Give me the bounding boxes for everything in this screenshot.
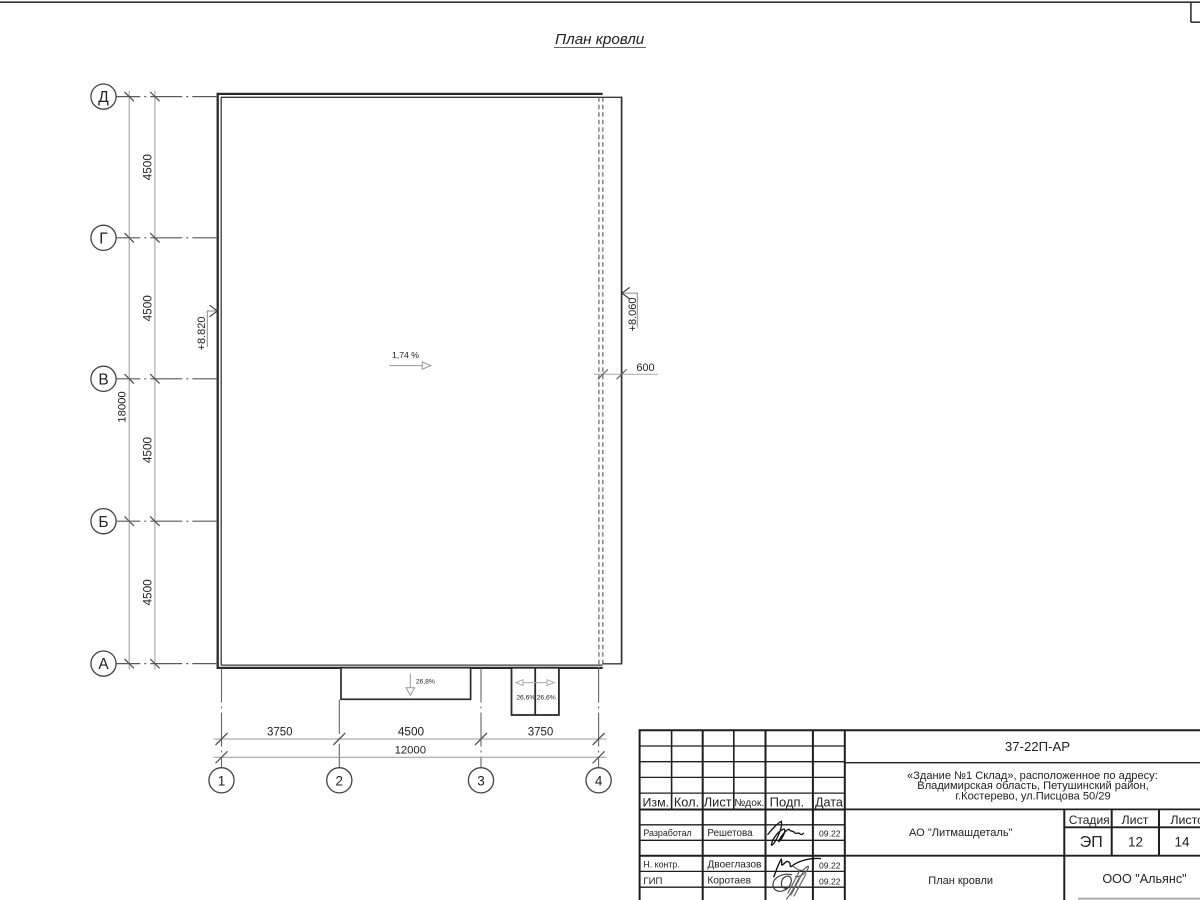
svg-text:+8.820: +8.820 (196, 317, 208, 351)
svg-text:Лист: Лист (704, 795, 732, 810)
svg-text:12000: 12000 (395, 745, 426, 757)
svg-text:В: В (98, 371, 108, 388)
svg-text:Подп.: Подп. (770, 795, 805, 810)
svg-text:4500: 4500 (140, 436, 154, 463)
svg-text:09.22: 09.22 (819, 861, 841, 871)
svg-text:4: 4 (595, 773, 603, 788)
svg-text:3750: 3750 (528, 726, 554, 738)
svg-text:Решетова: Решетова (707, 828, 753, 839)
svg-text:14: 14 (1174, 835, 1190, 850)
svg-text:Дата: Дата (815, 796, 843, 810)
svg-text:4500: 4500 (398, 724, 425, 738)
svg-text:Разработал: Разработал (643, 828, 691, 838)
svg-text:12: 12 (1128, 835, 1143, 850)
svg-text:1: 1 (218, 773, 226, 788)
svg-text:3750: 3750 (267, 726, 293, 738)
svg-text:Двоеглазов: Двоеглазов (707, 860, 761, 871)
svg-text:Листов: Листов (1170, 813, 1200, 827)
svg-text:26,6%: 26,6% (537, 694, 556, 701)
svg-text:4500: 4500 (140, 295, 154, 322)
svg-text:№док.: №док. (734, 798, 764, 809)
svg-text:А: А (98, 656, 109, 673)
svg-text:18000: 18000 (117, 391, 129, 422)
svg-text:09.22: 09.22 (819, 876, 841, 886)
svg-text:Лист: Лист (1122, 813, 1149, 827)
svg-text:3: 3 (477, 773, 485, 788)
svg-text:Коротаев: Коротаев (707, 876, 751, 887)
svg-text:ООО "Альянс": ООО "Альянс" (1102, 872, 1186, 886)
svg-text:ЭП: ЭП (1080, 834, 1103, 851)
svg-text:+8.060: +8.060 (627, 298, 639, 332)
svg-text:26,8%: 26,8% (416, 679, 435, 686)
svg-text:Кол.: Кол. (674, 795, 699, 810)
svg-text:ГИП: ГИП (643, 876, 662, 887)
svg-text:37-22П-АР: 37-22П-АР (1005, 739, 1070, 754)
svg-text:АО "Литмашдеталь": АО "Литмашдеталь" (909, 827, 1013, 839)
svg-text:Б: Б (98, 514, 108, 531)
svg-text:План кровли: План кровли (928, 875, 993, 887)
svg-text:2: 2 (336, 773, 344, 788)
svg-text:26,6%: 26,6% (516, 694, 535, 701)
svg-text:4500: 4500 (140, 579, 154, 606)
svg-text:План кровли: План кровли (555, 31, 645, 48)
svg-text:г.Костерево, ул.Писцова 50/29: г.Костерево, ул.Писцова 50/29 (955, 790, 1110, 802)
svg-text:600: 600 (636, 362, 654, 374)
svg-text:1,74 %: 1,74 % (392, 350, 419, 360)
svg-text:Н. контр.: Н. контр. (643, 860, 679, 870)
svg-text:Г: Г (99, 230, 108, 247)
svg-text:Стадия: Стадия (1069, 813, 1110, 827)
svg-text:4500: 4500 (140, 154, 154, 181)
svg-text:Д: Д (98, 89, 109, 106)
svg-text:Изм.: Изм. (643, 796, 670, 810)
svg-text:09.22: 09.22 (819, 828, 841, 838)
